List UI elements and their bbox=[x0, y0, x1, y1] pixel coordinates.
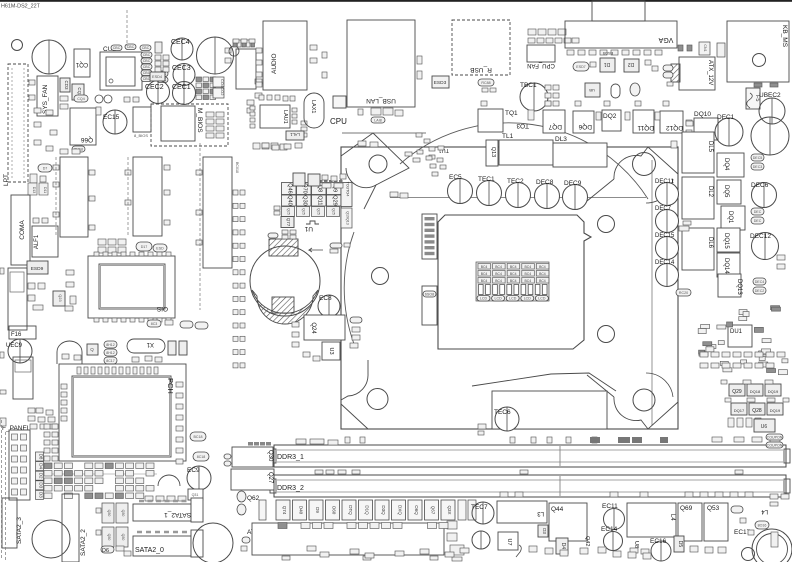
svg-text:DEC1: DEC1 bbox=[717, 114, 735, 121]
svg-text:DL3: DL3 bbox=[555, 136, 567, 143]
svg-text:D3Q: D3Q bbox=[381, 505, 386, 515]
svg-text:DEC5: DEC5 bbox=[753, 156, 763, 160]
svg-text:TBC1: TBC1 bbox=[520, 82, 537, 89]
svg-text:O6Q: O6Q bbox=[414, 505, 419, 515]
svg-text:Q30: Q30 bbox=[267, 450, 273, 462]
svg-text:SATA2_2: SATA2_2 bbox=[80, 529, 87, 556]
svg-text:AUDIO: AUDIO bbox=[271, 53, 278, 74]
svg-text:U3: U3 bbox=[328, 347, 334, 354]
svg-text:L4: L4 bbox=[669, 514, 675, 521]
svg-text:UEC9: UEC9 bbox=[6, 343, 23, 349]
svg-text:OIS: OIS bbox=[156, 305, 168, 312]
svg-text:BC4: BC4 bbox=[495, 272, 502, 276]
svg-text:D1: D1 bbox=[604, 61, 611, 67]
svg-text:Q13: Q13 bbox=[490, 147, 496, 157]
svg-text:CBC: CBC bbox=[143, 59, 151, 63]
svg-text:U8: U8 bbox=[633, 541, 639, 548]
svg-text:LCD: LCD bbox=[538, 297, 546, 301]
svg-text:DEC14: DEC14 bbox=[655, 260, 675, 266]
svg-text:X1: X1 bbox=[146, 341, 154, 347]
svg-text:Q30: Q30 bbox=[121, 534, 125, 541]
svg-text:CEC1: CEC1 bbox=[172, 84, 191, 91]
svg-text:LAL1: LAL1 bbox=[289, 132, 299, 137]
svg-text:BC4: BC4 bbox=[481, 272, 488, 276]
svg-text:PCH: PCH bbox=[166, 378, 175, 394]
svg-text:D5: D5 bbox=[677, 541, 683, 548]
svg-text:Q27: Q27 bbox=[267, 472, 273, 484]
svg-text:DDR3_1: DDR3_1 bbox=[277, 454, 304, 461]
svg-text:DXQ: DXQ bbox=[398, 505, 403, 515]
svg-text:Q25: Q25 bbox=[317, 208, 321, 215]
svg-text:Q30: Q30 bbox=[107, 510, 111, 517]
svg-text:H61M-DS2_22T: H61M-DS2_22T bbox=[1, 4, 41, 10]
svg-text:R_USB: R_USB bbox=[470, 66, 492, 73]
svg-text:DEC: DEC bbox=[754, 219, 762, 223]
svg-text:DL6: DL6 bbox=[707, 237, 713, 249]
svg-text:8C18: 8C18 bbox=[197, 455, 206, 459]
svg-text:D3: D3 bbox=[39, 482, 44, 488]
svg-text:EC11: EC11 bbox=[602, 503, 618, 510]
svg-text:CQ4: CQ4 bbox=[77, 97, 84, 101]
svg-text:BC018: BC018 bbox=[235, 162, 239, 173]
svg-text:DU1: DU1 bbox=[730, 329, 743, 335]
svg-text:ATX_12V: ATX_12V bbox=[707, 60, 713, 85]
svg-text:TL1: TL1 bbox=[502, 133, 514, 140]
svg-text:DQ4: DQ4 bbox=[723, 158, 729, 171]
svg-text:TEC1: TEC1 bbox=[478, 176, 495, 183]
svg-text:Q40: Q40 bbox=[287, 195, 293, 205]
svg-text:BC4: BC4 bbox=[495, 279, 502, 283]
svg-text:Q53: Q53 bbox=[707, 505, 720, 512]
svg-text:Q42: Q42 bbox=[584, 536, 590, 546]
svg-text:Q: Q bbox=[90, 347, 94, 352]
svg-text:TEC2: TEC2 bbox=[507, 178, 524, 185]
svg-text:EC15: EC15 bbox=[103, 114, 120, 121]
svg-text:Q29: Q29 bbox=[732, 389, 742, 395]
svg-text:8H12: 8H12 bbox=[106, 351, 115, 355]
svg-text:TO3: TO3 bbox=[516, 122, 529, 129]
svg-text:D4: D4 bbox=[39, 463, 44, 469]
svg-text:UB: UB bbox=[589, 88, 595, 93]
svg-text:COMA: COMA bbox=[19, 220, 26, 240]
svg-text:8C3: 8C3 bbox=[151, 322, 158, 326]
svg-text:Q30: Q30 bbox=[302, 195, 308, 205]
svg-text:DEC9: DEC9 bbox=[564, 180, 582, 187]
svg-text:CBC: CBC bbox=[143, 65, 151, 69]
svg-text:8_BIOS: 8_BIOS bbox=[134, 133, 148, 138]
svg-text:Q69: Q69 bbox=[680, 505, 693, 512]
svg-text:DEC3: DEC3 bbox=[753, 165, 763, 169]
svg-text:D9: D9 bbox=[315, 507, 320, 513]
svg-text:DL2: DL2 bbox=[707, 186, 713, 198]
svg-text:Q46: Q46 bbox=[287, 183, 293, 193]
svg-text:D4: D4 bbox=[560, 543, 566, 550]
svg-text:D40: D40 bbox=[299, 506, 304, 515]
svg-text:D1Q: D1Q bbox=[365, 505, 370, 515]
svg-text:EC5: EC5 bbox=[449, 174, 462, 181]
svg-text:CBC: CBC bbox=[127, 45, 135, 49]
svg-text:BC4: BC4 bbox=[524, 265, 531, 269]
svg-text:DEC4: DEC4 bbox=[755, 280, 765, 284]
svg-text:BC4: BC4 bbox=[510, 265, 517, 269]
svg-text:CBC: CBC bbox=[113, 46, 121, 50]
svg-text:LAI8: LAI8 bbox=[374, 118, 381, 122]
svg-text:Q30: Q30 bbox=[121, 510, 125, 517]
svg-text:DQ19: DQ19 bbox=[768, 389, 779, 394]
svg-text:L4: L4 bbox=[761, 508, 768, 514]
svg-text:CBC: CBC bbox=[142, 46, 150, 50]
svg-text:D17: D17 bbox=[141, 245, 148, 249]
svg-text:LAX1: LAX1 bbox=[310, 100, 316, 113]
svg-text:D6: D6 bbox=[102, 548, 109, 554]
svg-text:Q31: Q31 bbox=[192, 493, 199, 497]
svg-text:LCD: LCD bbox=[480, 297, 488, 301]
svg-text:DEC11: DEC11 bbox=[655, 179, 675, 185]
svg-text:DQ19: DQ19 bbox=[770, 408, 781, 413]
svg-text:8H12: 8H12 bbox=[106, 343, 115, 347]
svg-text:Q74: Q74 bbox=[282, 506, 287, 515]
svg-text:RC88: RC88 bbox=[481, 81, 490, 85]
svg-text:M_BIOS: M_BIOS bbox=[196, 108, 203, 133]
svg-text:D8: D8 bbox=[39, 454, 44, 460]
svg-text:BC4: BC4 bbox=[481, 279, 488, 283]
svg-text:DQ14: DQ14 bbox=[723, 258, 729, 274]
svg-text:DQ12: DQ12 bbox=[666, 124, 683, 131]
svg-text:SATA2_0: SATA2_0 bbox=[135, 547, 164, 554]
svg-text:ESD4: ESD4 bbox=[152, 75, 162, 79]
svg-text:LPT: LPT bbox=[3, 174, 10, 186]
svg-text:ESD9: ESD9 bbox=[31, 266, 44, 272]
svg-text:EC16: EC16 bbox=[650, 538, 667, 545]
svg-text:LAU1: LAU1 bbox=[282, 110, 288, 124]
svg-text:D7: D7 bbox=[43, 166, 48, 170]
svg-text:O60: O60 bbox=[332, 506, 337, 515]
svg-text:DEC2: DEC2 bbox=[755, 289, 765, 293]
svg-text:DEC15: DEC15 bbox=[655, 233, 675, 239]
svg-text:USB_LAN: USB_LAN bbox=[366, 97, 396, 104]
svg-text:Q25: Q25 bbox=[302, 208, 306, 215]
svg-text:BC18: BC18 bbox=[194, 435, 203, 439]
svg-text:TEC6: TEC6 bbox=[494, 409, 511, 416]
svg-text:U7: U7 bbox=[506, 538, 512, 545]
svg-text:Q67: Q67 bbox=[431, 506, 436, 515]
svg-text:CN1: CN1 bbox=[703, 44, 707, 51]
svg-text:DQ7: DQ7 bbox=[548, 123, 562, 130]
svg-text:EC8: EC8 bbox=[319, 295, 332, 302]
svg-text:DQ13: DQ13 bbox=[736, 279, 742, 295]
svg-text:CBC: CBC bbox=[143, 53, 151, 57]
svg-text:Q24: Q24 bbox=[310, 322, 316, 334]
svg-text:Q29: Q29 bbox=[332, 195, 338, 205]
svg-text:DEC7: DEC7 bbox=[655, 206, 672, 212]
svg-text:Q66: Q66 bbox=[80, 136, 93, 143]
svg-text:ALF1: ALF1 bbox=[34, 234, 40, 249]
svg-text:DEC8: DEC8 bbox=[536, 179, 554, 186]
svg-text:DQ17: DQ17 bbox=[734, 408, 745, 413]
svg-text:SYS_FAN: SYS_FAN bbox=[42, 84, 49, 114]
svg-text:EC9: EC9 bbox=[187, 467, 200, 474]
svg-text:CQ1: CQ1 bbox=[75, 61, 88, 67]
svg-text:EC14: EC14 bbox=[601, 526, 618, 533]
svg-text:ESD: ESD bbox=[156, 246, 164, 250]
svg-text:BC4: BC4 bbox=[495, 265, 502, 269]
svg-text:DQ1: DQ1 bbox=[727, 211, 733, 224]
svg-text:CPU_FAN: CPU_FAN bbox=[527, 62, 555, 68]
svg-text:6SO8: 6SO8 bbox=[425, 292, 434, 296]
svg-text:8C17: 8C17 bbox=[106, 359, 115, 363]
svg-text:CD3: CD3 bbox=[64, 80, 69, 89]
svg-text:DEC6: DEC6 bbox=[751, 182, 769, 189]
svg-text:D2: D2 bbox=[628, 61, 635, 67]
svg-text:CO4CO2: CO4CO2 bbox=[220, 79, 225, 96]
svg-text:BC4: BC4 bbox=[510, 272, 517, 276]
svg-text:LCD: LCD bbox=[509, 297, 517, 301]
svg-text:KB_MS: KB_MS bbox=[781, 25, 788, 48]
svg-text:BC4: BC4 bbox=[481, 265, 488, 269]
svg-text:DQ2: DQ2 bbox=[603, 113, 617, 120]
svg-text:DQ15: DQ15 bbox=[723, 233, 729, 249]
svg-text:COUPON: COUPON bbox=[767, 443, 783, 447]
svg-text:D3: D3 bbox=[542, 528, 547, 534]
svg-text:Q11: Q11 bbox=[317, 196, 323, 206]
svg-text:CBC: CBC bbox=[143, 71, 151, 75]
svg-text:Q3X: Q3X bbox=[447, 505, 452, 514]
svg-text:ESD3: ESD3 bbox=[434, 80, 447, 86]
svg-text:BC4: BC4 bbox=[539, 265, 546, 269]
svg-text:Q25: Q25 bbox=[332, 208, 336, 215]
svg-text:U6: U6 bbox=[761, 424, 768, 430]
svg-text:D11: D11 bbox=[43, 187, 47, 193]
svg-text:DEC: DEC bbox=[754, 210, 762, 214]
svg-text:VGA: VGA bbox=[658, 36, 673, 43]
svg-text:LCD: LCD bbox=[494, 297, 502, 301]
svg-text:DQ6: DQ6 bbox=[578, 123, 592, 130]
svg-text:L3: L3 bbox=[537, 510, 544, 516]
svg-text:DQ11: DQ11 bbox=[637, 124, 654, 131]
svg-text:DQ18: DQ18 bbox=[750, 389, 761, 394]
svg-text:BC4: BC4 bbox=[510, 279, 517, 283]
svg-text:Q30: Q30 bbox=[107, 534, 111, 541]
svg-text:F16: F16 bbox=[11, 332, 22, 338]
svg-text:D13: D13 bbox=[32, 187, 36, 194]
svg-text:BC4: BC4 bbox=[524, 279, 531, 283]
svg-text:DL5: DL5 bbox=[707, 141, 713, 153]
svg-text:CBC: CBC bbox=[143, 77, 151, 81]
svg-text:ESD7: ESD7 bbox=[576, 65, 585, 69]
svg-text:Q25: Q25 bbox=[287, 208, 291, 215]
svg-text:ESD5: ESD5 bbox=[602, 51, 613, 56]
svg-text:TQ1: TQ1 bbox=[505, 110, 518, 117]
svg-text:BC4: BC4 bbox=[524, 272, 531, 276]
svg-text:TO3TO4: TO3TO4 bbox=[346, 182, 350, 197]
svg-text:Q62: Q62 bbox=[247, 495, 260, 502]
svg-text:CPU: CPU bbox=[330, 117, 347, 126]
svg-text:TEC7: TEC7 bbox=[471, 504, 488, 511]
svg-text:Q19Q13: Q19Q13 bbox=[346, 211, 350, 225]
svg-text:RC20: RC20 bbox=[679, 291, 688, 295]
svg-text:D3: D3 bbox=[39, 492, 44, 498]
svg-text:DTQ: DTQ bbox=[348, 505, 353, 515]
svg-text:Q23: Q23 bbox=[58, 294, 62, 301]
svg-text:CEC3: CEC3 bbox=[172, 65, 191, 72]
svg-text:UBEC2: UBEC2 bbox=[759, 92, 781, 99]
svg-text:DEC12: DEC12 bbox=[750, 233, 771, 240]
svg-text:BC4: BC4 bbox=[539, 279, 546, 283]
svg-text:BC4: BC4 bbox=[539, 272, 546, 276]
svg-text:DDR3_2: DDR3_2 bbox=[277, 485, 304, 492]
svg-text:Q77: Q77 bbox=[286, 218, 291, 227]
svg-text:DQ10: DQ10 bbox=[694, 111, 711, 118]
svg-text:COUPON: COUPON bbox=[767, 435, 783, 439]
svg-text:8O16: 8O16 bbox=[758, 523, 767, 527]
svg-text:Q44: Q44 bbox=[551, 506, 564, 513]
svg-text:CEC4: CEC4 bbox=[171, 39, 190, 46]
svg-text:CEC2: CEC2 bbox=[145, 84, 164, 91]
svg-text:LCD: LCD bbox=[524, 297, 532, 301]
svg-text:U1: U1 bbox=[304, 225, 313, 232]
svg-text:DQ5: DQ5 bbox=[723, 185, 729, 198]
svg-text:SATA2_1: SATA2_1 bbox=[164, 511, 191, 518]
svg-text:Q28: Q28 bbox=[752, 408, 762, 414]
svg-text:D2: D2 bbox=[39, 473, 44, 479]
svg-text:SATA2_3: SATA2_3 bbox=[16, 517, 23, 544]
